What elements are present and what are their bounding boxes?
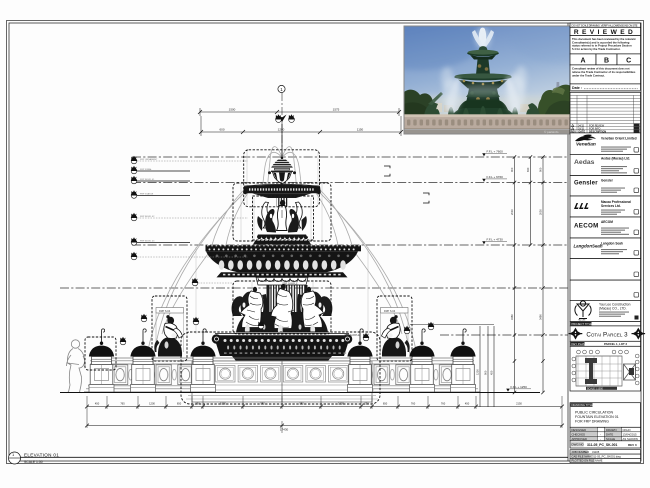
svg-text:F.F.L + 7600: F.F.L + 7600 <box>487 150 504 154</box>
svg-text:2150: 2150 <box>516 402 522 406</box>
svg-text:450: 450 <box>490 370 494 375</box>
svg-text:DWG NO: DWG NO <box>572 443 585 447</box>
svg-text:SCALE 1:50: SCALE 1:50 <box>24 460 43 464</box>
svg-text:YAU LEE: YAU LEE <box>578 319 586 322</box>
svg-text:C: C <box>626 57 631 64</box>
svg-text:(Macau) CO., LTD.: (Macau) CO., LTD. <box>599 306 627 310</box>
svg-text:FOUNTAIN ELEVATION 01: FOUNTAIN ELEVATION 01 <box>575 415 619 419</box>
svg-text:KEY PLAN: KEY PLAN <box>572 342 586 346</box>
svg-text:Aedas (Macau) Ltd.: Aedas (Macau) Ltd. <box>601 157 630 161</box>
svg-text:PLOTTED ON FILE NAME: PLOTTED ON FILE NAME <box>572 459 603 463</box>
svg-text:450: 450 <box>465 402 470 406</box>
svg-text:3480: 3480 <box>539 314 543 320</box>
svg-text:-: - <box>600 437 601 441</box>
svg-text:© parisinfo: © parisinfo <box>544 130 559 134</box>
svg-text:FRP S.04: FRP S.04 <box>159 309 171 313</box>
svg-text:DRAWN: DRAWN <box>606 428 616 432</box>
svg-text:900: 900 <box>484 370 488 375</box>
svg-text:840: 840 <box>526 167 530 172</box>
svg-text:1150: 1150 <box>357 128 364 132</box>
svg-text:FRP BOWL 01: FRP BOWL 01 <box>140 179 155 181</box>
svg-text:Services Ltd.: Services Ltd. <box>601 204 621 208</box>
svg-text:Aedas: Aedas <box>574 159 595 166</box>
svg-text:1000: 1000 <box>220 402 226 406</box>
svg-text:250: 250 <box>364 402 369 406</box>
svg-text:FOR FRP DRAWING: FOR FRP DRAWING <box>575 420 609 424</box>
svg-text:1250: 1250 <box>476 369 480 375</box>
svg-text:FRP STATUE: FRP STATUE <box>140 192 154 195</box>
svg-text:5.4 for action by the Trade Co: 5.4 for action by the Trade Contractor. <box>572 47 621 51</box>
svg-text:-: - <box>600 432 601 436</box>
svg-text:PARCEL 1, LOT 2: PARCEL 1, LOT 2 <box>604 342 627 346</box>
svg-text:AECOM: AECOM <box>601 220 613 224</box>
svg-text:980: 980 <box>299 402 304 406</box>
svg-text:FRP ORNAMENT: FRP ORNAMENT <box>140 158 158 161</box>
svg-text:13/04/2015: 13/04/2015 <box>623 432 637 436</box>
svg-text:AECOM: AECOM <box>574 223 599 230</box>
svg-text:760: 760 <box>411 402 416 406</box>
svg-text:2030: 2030 <box>539 209 543 215</box>
svg-text:2030: 2030 <box>510 209 514 215</box>
svg-text:650: 650 <box>383 402 388 406</box>
svg-text:900: 900 <box>539 167 543 172</box>
svg-text:311-05_PC_SK-001: 311-05_PC_SK-001 <box>587 443 617 447</box>
svg-text:FRP S.04: FRP S.04 <box>384 309 396 313</box>
svg-text:CKHO: CKHO <box>623 428 632 432</box>
svg-text:LangdonSeah: LangdonSeah <box>574 244 603 249</box>
svg-text:250: 250 <box>195 402 200 406</box>
svg-text:SCALE: SCALE <box>606 437 615 441</box>
svg-text:31105: 31105 <box>592 450 600 454</box>
svg-text:1200: 1200 <box>149 402 155 406</box>
svg-text:Langdon Seah: Langdon Seah <box>601 242 623 246</box>
svg-text:JOB NUMBER: JOB NUMBER <box>572 450 590 454</box>
svg-text:under the Trade Contract.: under the Trade Contract. <box>572 73 605 77</box>
svg-text:311-05_PC_SK001.dwg: 311-05_PC_SK001.dwg <box>592 454 621 458</box>
svg-text:FRP BOWL 03: FRP BOWL 03 <box>140 240 155 242</box>
svg-text:DESIGNED: DESIGNED <box>572 428 587 432</box>
svg-text:600: 600 <box>219 128 224 132</box>
svg-text:FRP FINIAL: FRP FINIAL <box>140 168 153 171</box>
svg-text:765: 765 <box>120 402 125 406</box>
svg-text:F.F.L + 4730: F.F.L + 4730 <box>487 238 504 242</box>
svg-text:ELEVATION 01: ELEVATION 01 <box>24 452 59 457</box>
svg-text:relieve the Trade Contracto: relieve the Trade Contractor of its resp… <box>572 70 636 74</box>
svg-text:B: B <box>604 57 609 64</box>
svg-text:CHECKED: CHECKED <box>572 432 586 436</box>
svg-text:900: 900 <box>510 167 514 172</box>
svg-text:1575: 1575 <box>333 108 340 112</box>
svg-text:3480: 3480 <box>510 314 514 320</box>
svg-text:Venetian: Venetian <box>576 142 596 148</box>
svg-text:PUBLIC CIRCULATION: PUBLIC CIRCULATION <box>575 411 613 415</box>
svg-text:REV 0: REV 0 <box>628 443 637 447</box>
svg-text:1500: 1500 <box>229 108 236 112</box>
svg-text:980: 980 <box>260 402 265 406</box>
svg-text:Gensler: Gensler <box>601 179 614 183</box>
svg-text:PROJECT TITLE: PROJECT TITLE <box>572 322 593 326</box>
svg-text:17430: 17430 <box>280 428 289 432</box>
svg-text:FRP BOWL 02: FRP BOWL 02 <box>140 216 155 218</box>
svg-text:Consultant review of this: Consultant review of this document does … <box>572 67 630 71</box>
svg-text:1000: 1000 <box>338 402 344 406</box>
svg-text:1200: 1200 <box>278 128 285 132</box>
svg-text:A: A <box>580 57 585 64</box>
svg-text:DATE: DATE <box>606 432 613 436</box>
svg-text:APPROVED: APPROVED <box>572 437 588 441</box>
svg-text:COTAI PARCEL 3: COTAI PARCEL 3 <box>586 331 628 338</box>
svg-text:FRP SAMPLE: FRP SAMPLE <box>344 334 360 337</box>
svg-text:SCALE 1:1000: SCALE 1:1000 <box>587 387 603 390</box>
svg-text:DRAWING TITLE: DRAWING TITLE <box>572 403 594 407</box>
svg-text:F.F.L + 6760: F.F.L + 6760 <box>487 175 504 179</box>
svg-text:AS SHOWN: AS SHOWN <box>623 437 638 441</box>
svg-text:450: 450 <box>95 402 100 406</box>
svg-text:DO NOT SCALE DRAWING. VERIFY A: DO NOT SCALE DRAWING. VERIFY ALL DIMENSI… <box>572 24 638 28</box>
svg-text:F.F.L + 1250: F.F.L + 1250 <box>511 385 528 389</box>
svg-text:Venetian Orient Limited: Venetian Orient Limited <box>601 137 637 141</box>
svg-text:760: 760 <box>441 402 446 406</box>
svg-text:REVIEWED: REVIEWED <box>574 29 636 36</box>
svg-text:650: 650 <box>177 402 182 406</box>
svg-text:Date :: Date : <box>572 86 582 90</box>
svg-text:FRP SAMPLE: FRP SAMPLE <box>282 282 298 285</box>
svg-text:Gensler: Gensler <box>574 181 598 187</box>
svg-text:CAD FILE NAME: CAD FILE NAME <box>572 454 593 458</box>
